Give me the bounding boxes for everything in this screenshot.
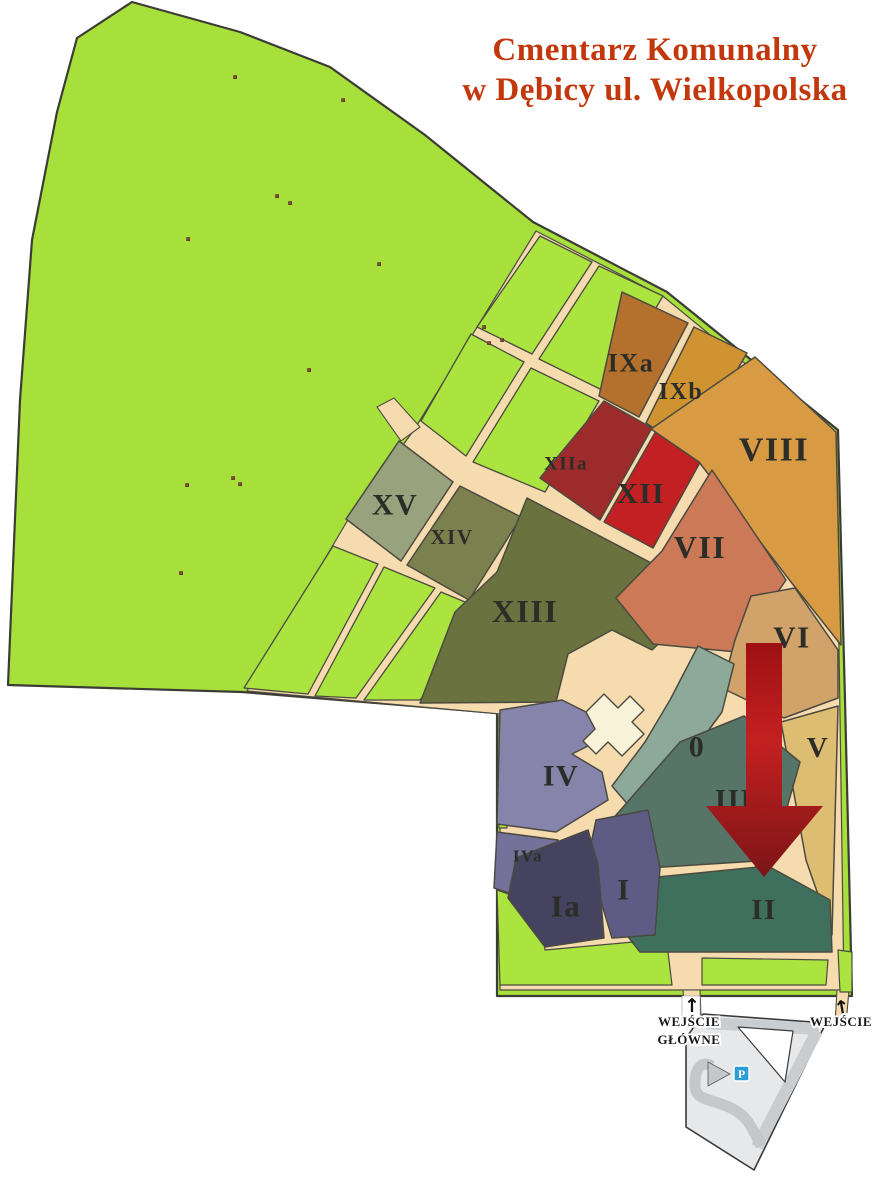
tree-dot bbox=[232, 477, 235, 480]
cemetery-map: XVXIVXIIIXIIaXIIIXaIXbVIIIVIIVIV0IIIIIIV… bbox=[0, 0, 880, 1180]
section-label-0: 0 bbox=[689, 731, 706, 764]
tree-dot bbox=[234, 76, 237, 79]
tree-dot bbox=[378, 263, 381, 266]
main-entrance-label-line1: WEJŚCIE bbox=[658, 1014, 720, 1029]
highlight-arrow-shaft bbox=[746, 643, 782, 809]
section-label-IV: IV bbox=[543, 760, 579, 793]
tree-dot bbox=[308, 369, 311, 372]
section-label-XIII: XIII bbox=[492, 593, 558, 629]
map-title: Cmentarz Komunalny w Dębicy ul. Wielkopo… bbox=[430, 30, 880, 110]
section-label-Ia: Ia bbox=[551, 889, 582, 924]
map-title-line2: w Dębicy ul. Wielkopolska bbox=[430, 70, 880, 110]
tree-dot bbox=[483, 326, 486, 329]
tree-dot bbox=[276, 195, 279, 198]
tree-dot bbox=[289, 202, 292, 205]
tree-dot bbox=[342, 99, 345, 102]
section-label-XIIa: XIIa bbox=[544, 454, 588, 475]
tree-dot bbox=[239, 483, 242, 486]
cemetery-map-page: XVXIVXIIIXIIaXIIIXaIXbVIIIVIIVIV0IIIIIIV… bbox=[0, 0, 880, 1180]
tree-dot bbox=[488, 342, 491, 345]
tree-dot bbox=[180, 572, 183, 575]
green-patch bbox=[702, 958, 828, 985]
section-label-XII: XII bbox=[617, 478, 665, 510]
main-entrance-label-line2: GŁÓWNE bbox=[658, 1032, 721, 1047]
parking-lane bbox=[707, 1023, 819, 1029]
tree-dot bbox=[501, 339, 504, 342]
section-label-IVa: IVa bbox=[513, 847, 543, 866]
section-label-XV: XV bbox=[372, 489, 418, 522]
section-label-VIII: VIII bbox=[739, 432, 809, 469]
section-label-V: V bbox=[807, 732, 829, 764]
parking-sign-p-label: P bbox=[738, 1067, 745, 1081]
section-label-IXb: IXb bbox=[659, 379, 704, 405]
tree-dot bbox=[186, 484, 189, 487]
side-entrance-label: WEJŚCIE bbox=[810, 1014, 872, 1029]
section-label-IXa: IXa bbox=[608, 349, 654, 378]
tree-dot bbox=[187, 238, 190, 241]
section-label-XIV: XIV bbox=[430, 525, 473, 549]
green-patch bbox=[838, 950, 852, 992]
section-label-II: II bbox=[751, 894, 777, 926]
section-label-VII: VII bbox=[674, 529, 727, 565]
map-title-line1: Cmentarz Komunalny bbox=[430, 30, 880, 70]
section-label-I: I bbox=[617, 874, 630, 907]
